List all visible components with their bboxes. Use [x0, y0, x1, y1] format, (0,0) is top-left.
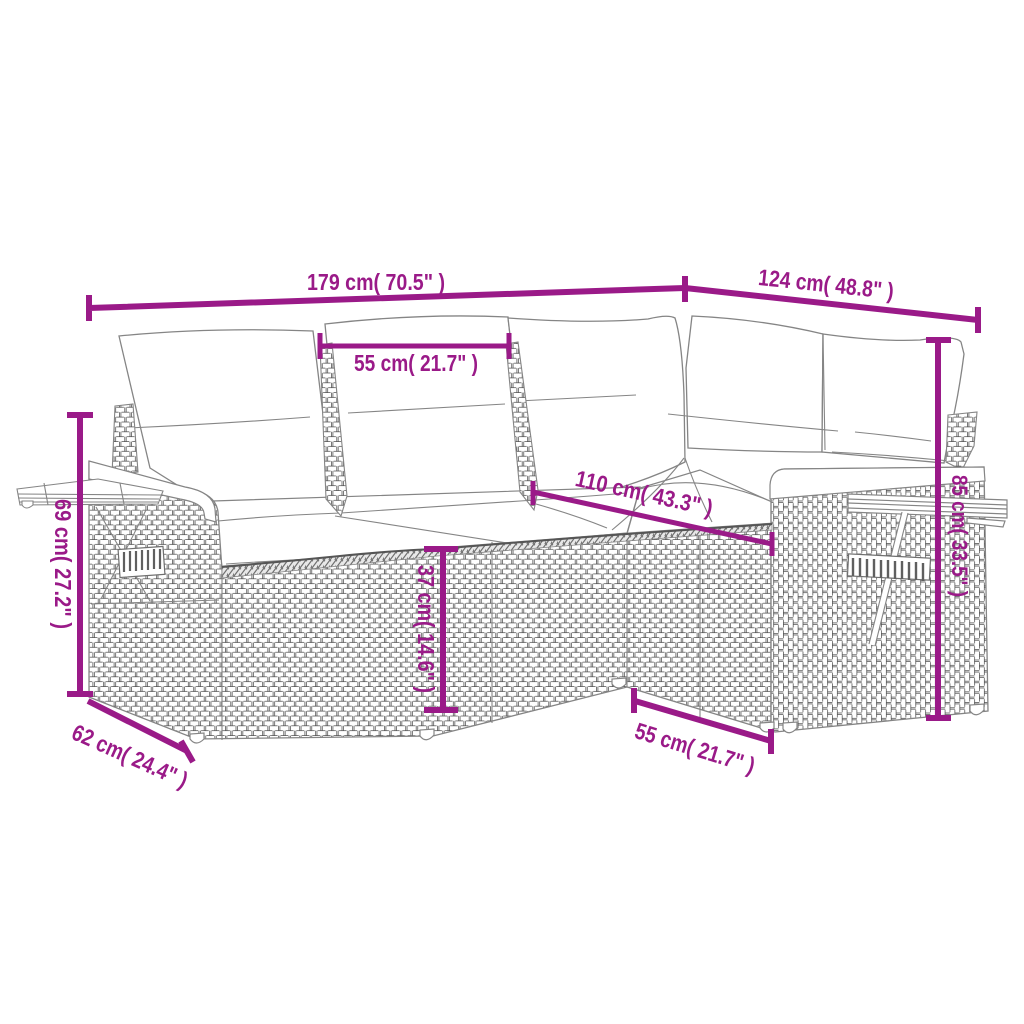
svg-text:85 cm( 33.5" ): 85 cm( 33.5" ) [947, 475, 972, 597]
svg-text:37 cm( 14.6" ): 37 cm( 14.6" ) [413, 565, 439, 693]
svg-text:179 cm( 70.5" ): 179 cm( 70.5" ) [307, 269, 445, 295]
svg-text:69 cm( 27.2" ): 69 cm( 27.2" ) [50, 499, 76, 629]
svg-text:55 cm( 21.7" ): 55 cm( 21.7" ) [354, 350, 478, 376]
